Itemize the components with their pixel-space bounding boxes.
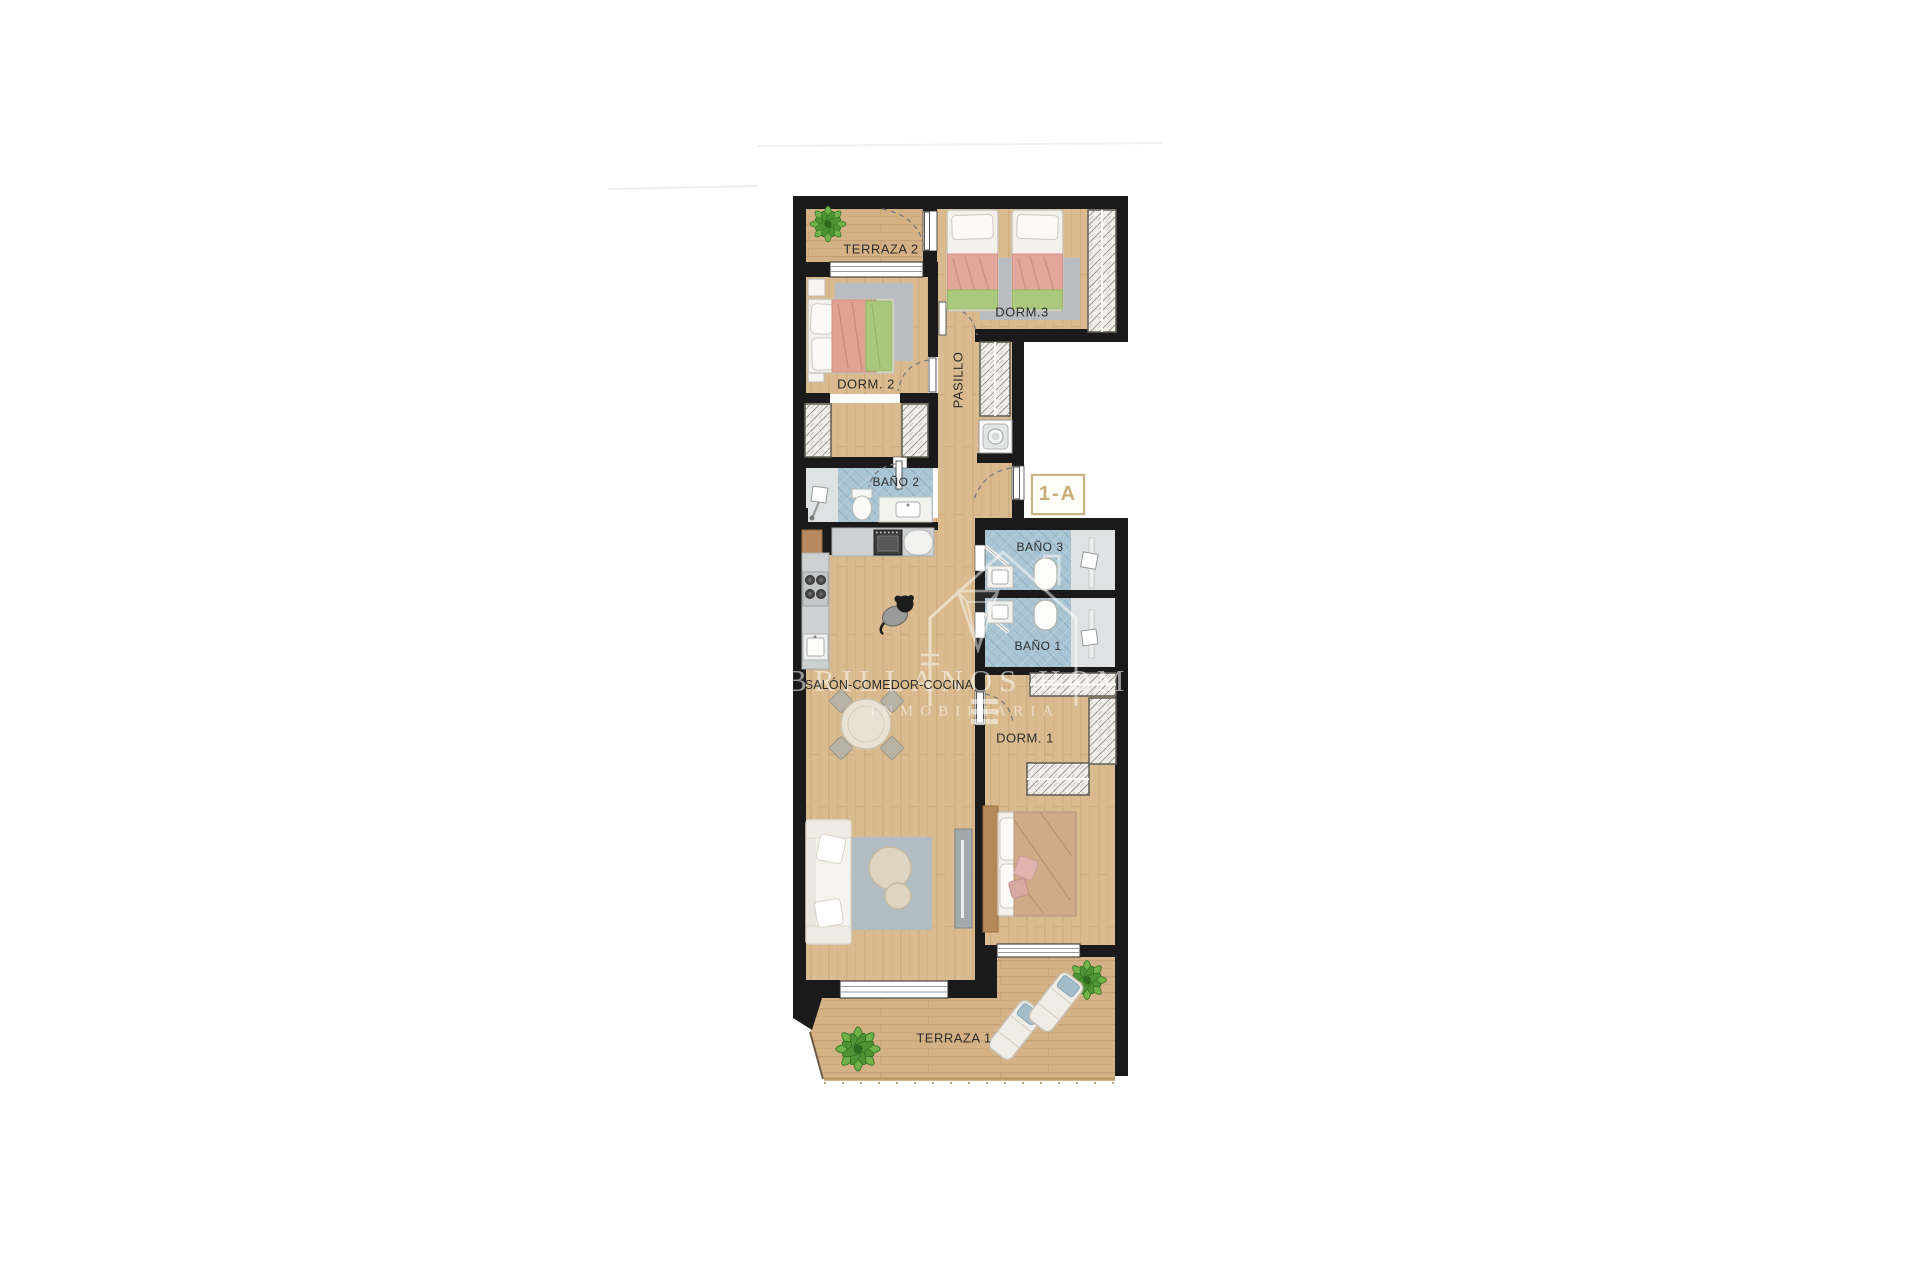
pouf-icon <box>869 847 911 889</box>
stove-icon <box>803 572 828 606</box>
kitchen-sink-icon <box>803 634 828 660</box>
sink-icon <box>987 566 1013 588</box>
unit-badge: 1-A <box>1031 474 1085 515</box>
floor-plan-canvas: BRILLANOS HOMES INMOBILIARIA TERRAZA 2 D… <box>0 0 1920 1280</box>
window-terraza2-dorm2 <box>830 262 923 277</box>
sink-icon <box>879 497 932 522</box>
room-label-bano3: BAÑO 3 <box>1016 540 1063 554</box>
dorm2-door-leaf <box>929 358 936 392</box>
room-label-dorm2: DORM. 2 <box>837 377 895 392</box>
scan-artifact-lines <box>608 143 1162 189</box>
room-label-terraza1: TERRAZA 1 <box>916 1031 991 1046</box>
bathtub-icon <box>1034 600 1057 630</box>
plant-icon <box>810 206 846 242</box>
floor-plan-svg <box>0 0 1920 1280</box>
double-bed-icon <box>983 806 1076 932</box>
room-label-dorm3: DORM.3 <box>995 305 1049 320</box>
sofa-icon <box>806 820 851 944</box>
wardrobe-icon <box>902 404 928 457</box>
room-label-pasillo: PASILLO <box>951 352 966 409</box>
toilet-icon <box>852 489 872 520</box>
room-label-dorm1: DORM. 1 <box>996 731 1054 746</box>
tv-unit-icon <box>955 829 972 928</box>
oven-icon <box>874 530 902 555</box>
room-label-bano2: BAÑO 2 <box>872 475 919 489</box>
plant-icon <box>836 1027 880 1071</box>
room-label-terraza2: TERRAZA 2 <box>843 242 918 257</box>
single-bed-icon <box>1012 210 1063 311</box>
window-dorm1-terraza1 <box>997 944 1080 957</box>
entry-door-opening <box>1012 466 1024 500</box>
room-label-bano1: BAÑO 1 <box>1014 639 1061 653</box>
door-opening-terraza2-dorm3 <box>923 211 937 251</box>
window-salon-terraza1 <box>840 981 948 998</box>
dorm3-door-leaf <box>939 302 946 335</box>
washing-machine-icon <box>979 420 1012 453</box>
pouf-icon <box>885 883 911 909</box>
room-label-salon: SALÓN-COMEDOR-COCINA <box>805 678 974 692</box>
single-bed-icon <box>947 210 998 311</box>
wardrobe-icon <box>1089 698 1116 764</box>
wardrobe-icon <box>805 404 831 457</box>
